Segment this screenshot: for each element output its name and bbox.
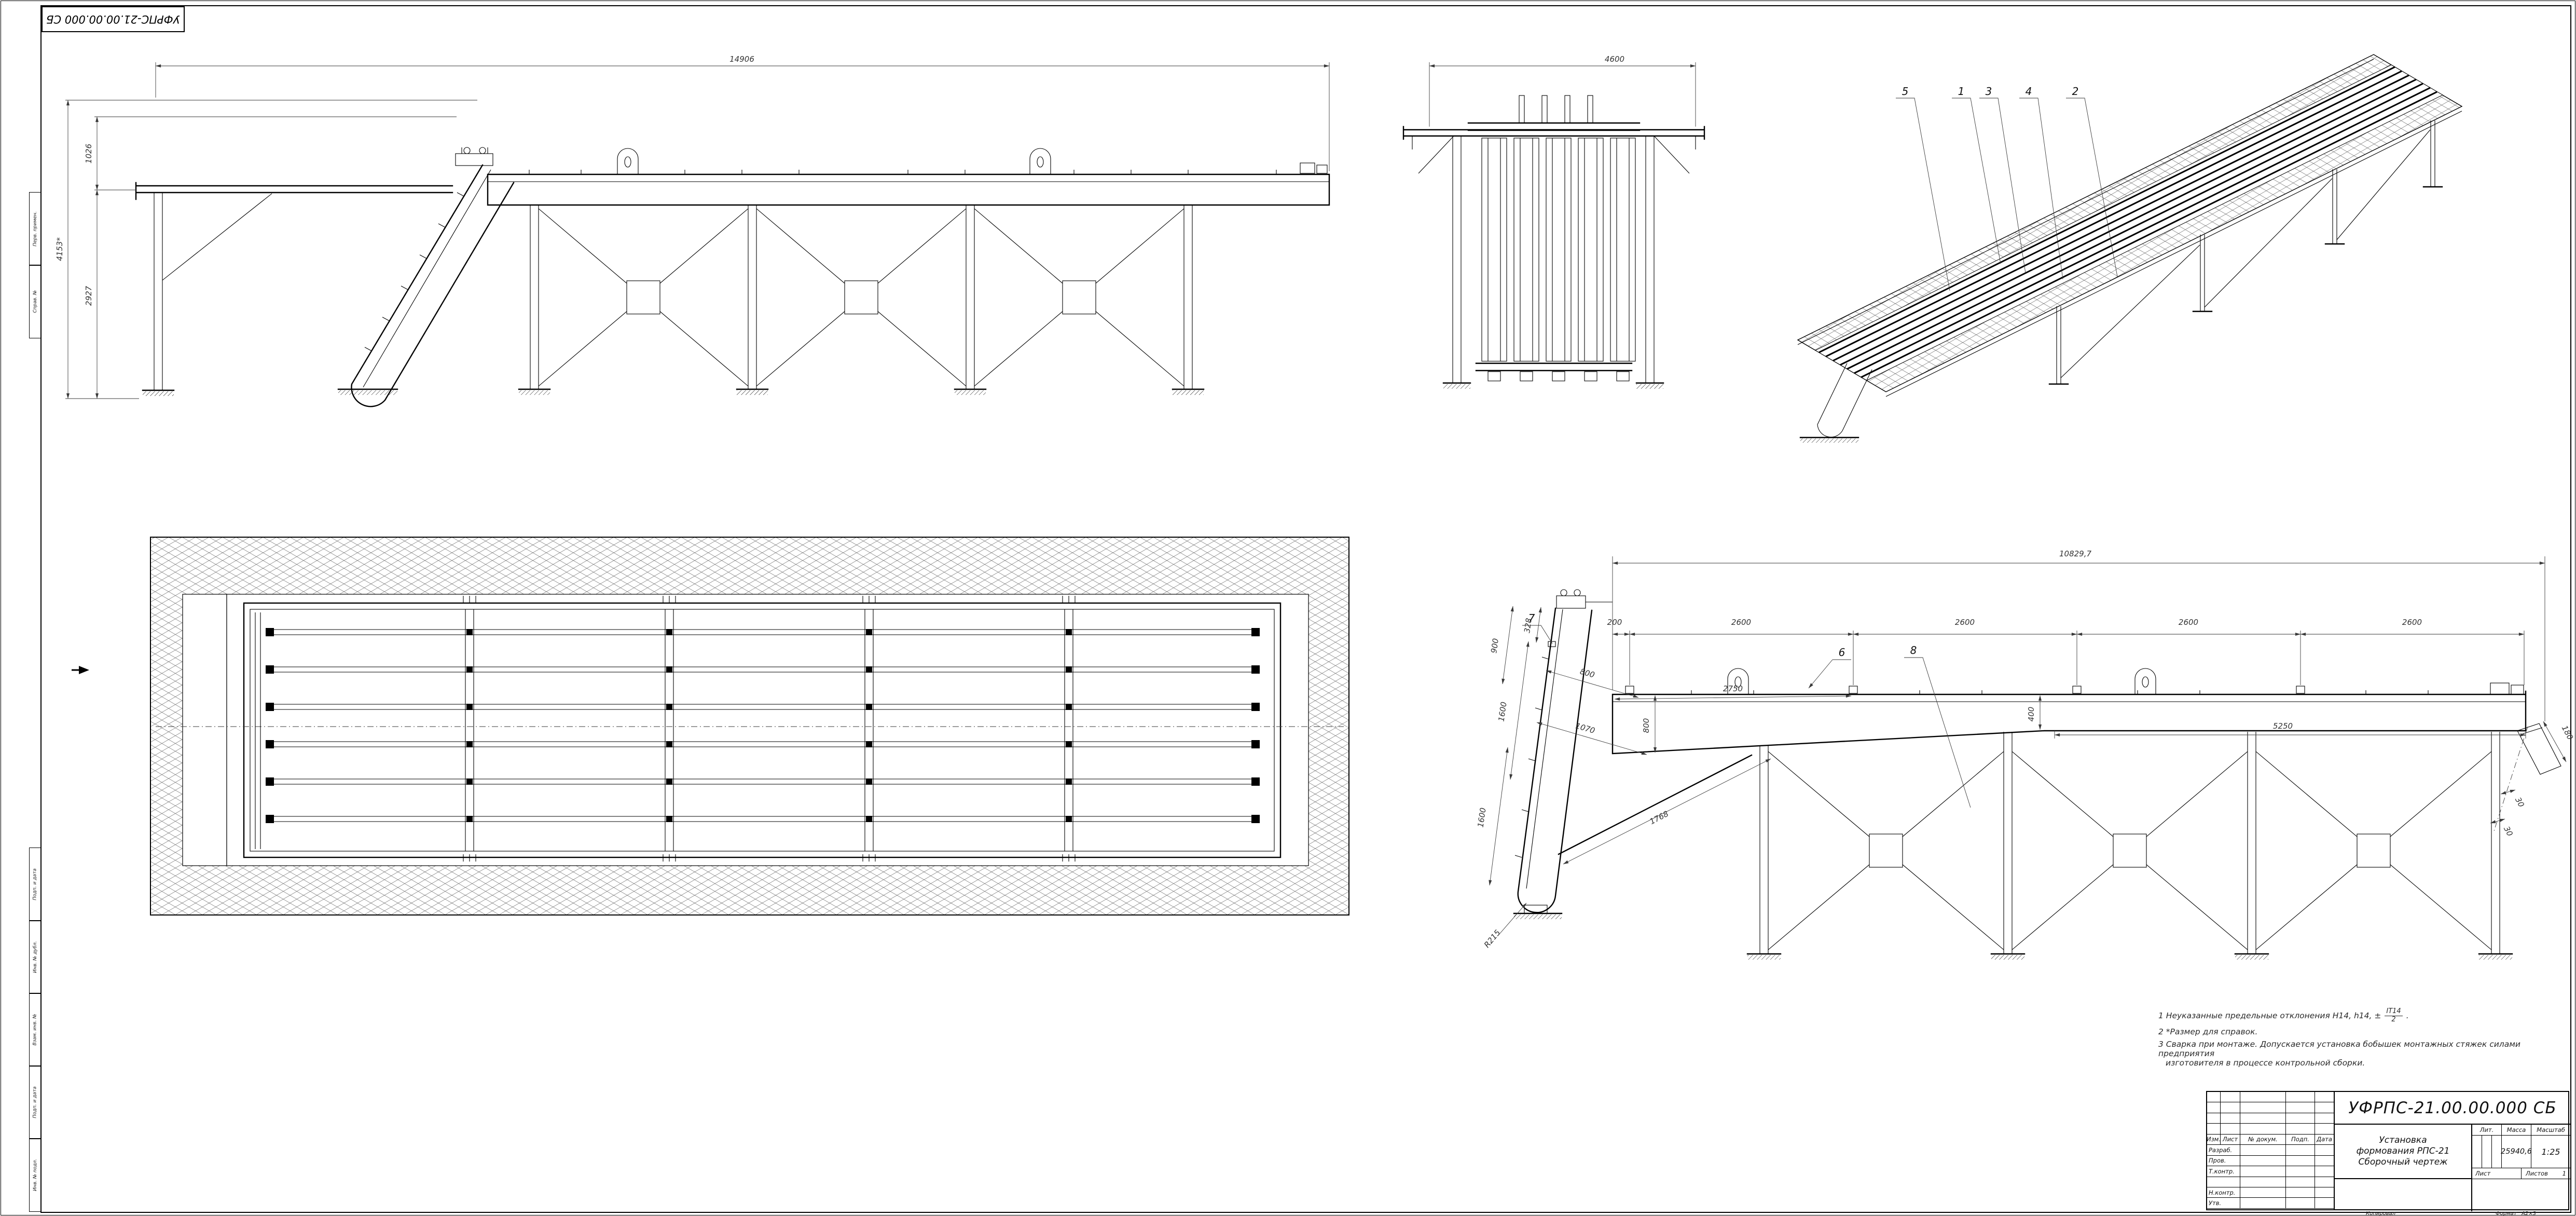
dim-1768: 1768 [1648,809,1670,826]
note-3-line-2: изготовителя в процессе контрольной сбор… [2158,1058,2573,1068]
view-isometric: 5 1 3 4 2 [1798,54,2462,443]
dim-400: 400 [2027,707,2036,722]
role-nkontr: Н.контр. [2207,1187,2240,1198]
callout-4: 4 [2026,85,2032,98]
scale-label: Масштаб [2531,1125,2570,1136]
mass-label: Масса [2502,1125,2531,1136]
callout-1: 1 [1958,85,1965,98]
callout-8: 8 [1910,644,1917,657]
col-data: Дата [2315,1135,2334,1145]
dim-30-a: 30 [2513,796,2526,809]
dim-side-overall: 14906 [729,54,754,64]
scale-value: 1:25 [2531,1136,2570,1168]
dim-900: 900 [1489,638,1500,654]
sheets-value: 1 [2563,1170,2566,1177]
dim-2750: 2750 [1723,684,1743,693]
dim-side-height: 4153* [55,237,64,261]
deck-beam [488,174,1329,205]
role-blank [2207,1177,2240,1187]
view-side-elevation: 14906 4153* 1026 2927 [55,54,1329,406]
dim-side-lower: 2927 [84,285,93,306]
dim-seg-2600-2: 2600 [1955,618,1975,627]
callout-2: 2 [2072,85,2079,98]
callout-5: 5 [1902,85,1909,98]
dim-seg-2600-1: 2600 [1731,618,1751,627]
dim-800-incline: 800 [1579,667,1595,680]
lit-label: Лит. [2472,1125,2502,1136]
note-1-fraction: IT14 2 [2385,1008,2402,1024]
lifting-lug [2135,668,2156,694]
col-podp: Подп. [2286,1135,2315,1145]
callout-3: 3 [1986,85,1992,98]
dim-side-upper: 1026 [84,144,93,163]
view-side-dimensioned: 10829,7 200 2600 2600 2600 2600 5250 400… [1476,549,2575,960]
dim-30-b: 30 [2502,825,2515,838]
role-prov: Пров. [2207,1156,2240,1166]
dim-800-vert: 800 [1642,718,1651,733]
product-name: Установка формования РПС-21 Сборочный че… [2335,1125,2472,1179]
dim-180: 180 [2560,724,2575,742]
dim-r215: R215 [1482,928,1503,949]
col-list: Лист [2221,1135,2240,1145]
note-1-text: 1 Неуказанные предельные отклонения H14,… [2158,1011,2381,1020]
dim-seg-200: 200 [1607,618,1622,627]
col-izm: Изм. [2207,1135,2221,1145]
mass-value: 25940,6 [2502,1136,2531,1168]
sheet-label: Лист [2472,1168,2522,1179]
note-3-line-1: 3 Сварка при монтаже. Допускается устано… [2158,1040,2573,1058]
enterprise-cell [2335,1179,2472,1211]
col-dokum: № докум. [2240,1135,2286,1145]
dim-side2-overall: 10829,7 [2059,549,2091,558]
role-utv: Утв. [2207,1198,2240,1208]
dim-1600-b: 1600 [1476,807,1487,828]
lit-boxes [2472,1136,2502,1168]
role-razrab: Разраб. [2207,1145,2240,1155]
dim-1600-a: 1600 [1496,701,1508,722]
format-label: Формат А2×3 [2496,1211,2536,1216]
drawing-sheet: УФРПС-21.00.00.000 СБ Перв. примен. Спра… [0,0,2576,1216]
note-1: 1 Неуказанные предельные отклонения H14,… [2158,1008,2573,1024]
title-block: Изм. Лист № докум. Подп. Дата Разраб. Пр… [2206,1091,2569,1210]
deck-beam [1613,691,2526,754]
view-front: 4600 [1403,54,1704,389]
copied-label: Копировал [2366,1211,2395,1216]
dim-seg-2600-3: 2600 [2179,618,2198,627]
callout-6: 6 [1839,646,1845,659]
lit-mass-scale-header: Лит. Масса Масштаб [2472,1125,2570,1136]
sheet-count-row: Лист Листов 1 [2472,1168,2570,1179]
document-number: УФРПС-21.00.00.000 СБ [2335,1092,2570,1125]
view-plan [72,537,1349,915]
title-block-revision-table: Изм. Лист № докум. Подп. Дата Разраб. Пр… [2207,1092,2335,1209]
role-tkontr: Т.контр. [2207,1166,2240,1177]
technical-notes: 1 Неуказанные предельные отклонения H14,… [2158,1008,2573,1071]
sheets-label: Листов [2526,1170,2548,1177]
dim-1070: 1070 [1575,721,1596,735]
lifting-lug [617,148,638,174]
lit-mass-scale-values: 25940,6 1:25 [2472,1136,2570,1168]
dim-5250: 5250 [2273,721,2293,731]
lifting-lug [1030,148,1051,174]
feeder-chute [351,165,514,406]
note-2: 2 *Размер для справок. [2158,1027,2573,1036]
dim-seg-2600-4: 2600 [2402,618,2422,627]
callout-7: 7 [1528,612,1535,624]
format-value: А2×3 [2522,1211,2536,1216]
dim-front-width: 4600 [1605,54,1624,64]
